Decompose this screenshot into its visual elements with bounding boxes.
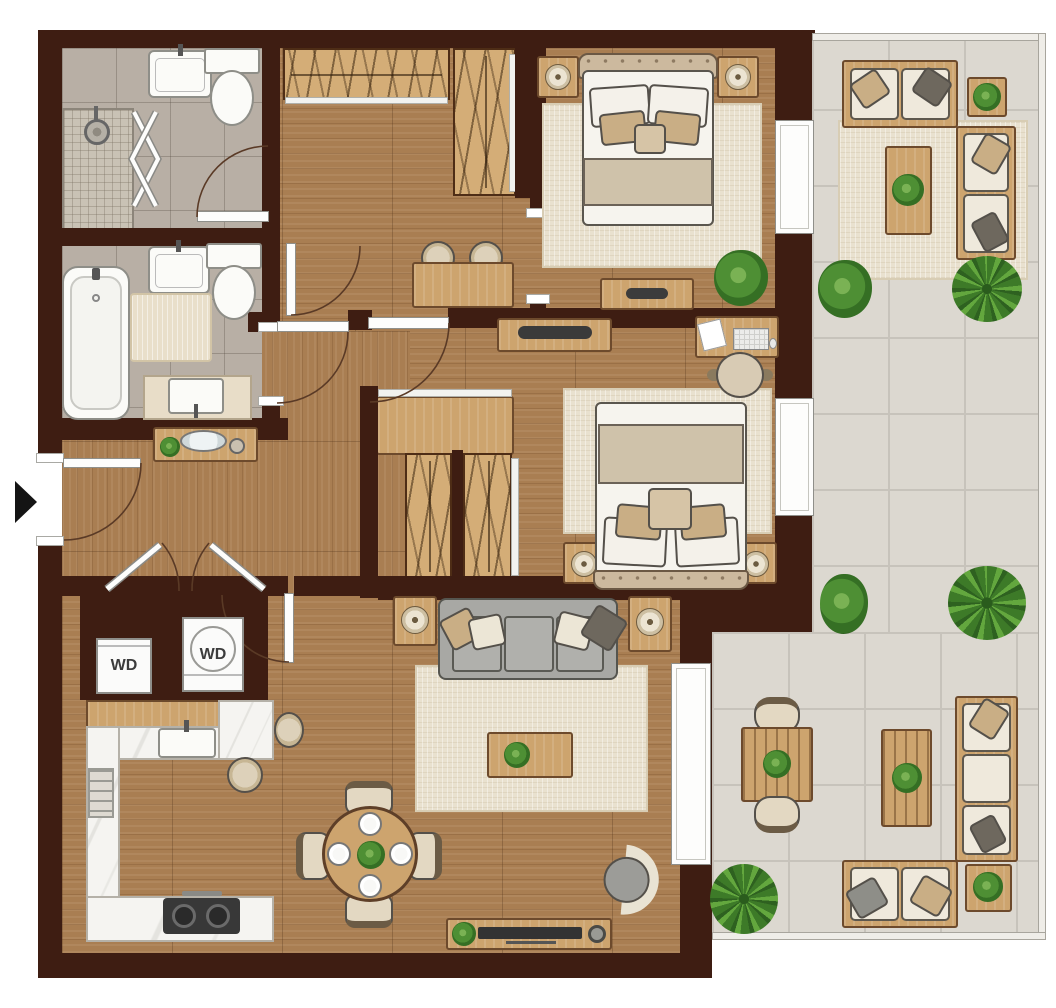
table-lamp bbox=[545, 64, 571, 90]
toilet-bowl bbox=[210, 70, 254, 126]
sink-basin bbox=[155, 58, 205, 92]
place-setting-plate bbox=[389, 842, 413, 866]
table-lamp bbox=[401, 606, 429, 634]
cooktop-handle bbox=[182, 891, 222, 896]
accent-pillow-small bbox=[648, 488, 692, 530]
balcony-plant bbox=[710, 864, 778, 934]
desk-chair bbox=[716, 352, 764, 398]
bench-handle bbox=[626, 288, 668, 299]
balcony-plant bbox=[820, 574, 868, 634]
washer-dryer-label: WD bbox=[111, 658, 138, 674]
tv-stand bbox=[506, 941, 556, 944]
sink-faucet bbox=[176, 240, 181, 252]
sink-faucet bbox=[178, 44, 183, 56]
dining-centerpiece-plant bbox=[357, 841, 385, 869]
shower-head bbox=[84, 119, 110, 145]
washer-dryer-label: WD bbox=[200, 647, 227, 663]
utility-bifold-doors bbox=[107, 545, 264, 589]
desk-mouse bbox=[769, 338, 777, 349]
vanity-faucet bbox=[194, 404, 198, 418]
kitchen-sink bbox=[158, 728, 216, 758]
outdoor-sofa-cushion bbox=[962, 754, 1011, 803]
toilet-bowl bbox=[212, 265, 256, 320]
tv bbox=[478, 927, 582, 939]
bed-blanket bbox=[598, 424, 744, 484]
bathtub-faucet bbox=[92, 268, 100, 280]
balcony-plant bbox=[818, 260, 872, 318]
table-lamp bbox=[636, 608, 664, 636]
dresser-handle bbox=[518, 326, 592, 339]
console-dish bbox=[229, 438, 245, 454]
speaker bbox=[588, 925, 606, 943]
bathtub-drain bbox=[92, 294, 100, 302]
cooktop-burner bbox=[206, 904, 230, 928]
washer-lid-line bbox=[98, 645, 150, 647]
kitchen-faucet bbox=[184, 720, 189, 732]
table-lamp bbox=[725, 64, 751, 90]
balcony-plant bbox=[948, 566, 1026, 640]
tv-console-plant bbox=[452, 922, 476, 946]
coffee-table bbox=[487, 732, 573, 778]
coffee-table-plant bbox=[504, 742, 530, 768]
outdoor-plant bbox=[892, 763, 922, 793]
outdoor-plant bbox=[763, 750, 791, 778]
accent-pillow-small bbox=[634, 124, 666, 154]
place-setting-plate bbox=[358, 874, 382, 898]
washer-panel-line bbox=[184, 674, 242, 676]
balcony-plant bbox=[952, 256, 1022, 322]
outdoor-plant bbox=[892, 174, 924, 206]
bar-stool bbox=[274, 712, 304, 748]
sofa-seat-cushion bbox=[504, 616, 554, 672]
sink-basin bbox=[155, 254, 203, 288]
outdoor-plant bbox=[973, 872, 1003, 902]
bed-blanket bbox=[583, 158, 713, 206]
place-setting-plate bbox=[358, 812, 382, 836]
cooktop-burner bbox=[172, 904, 196, 928]
kitchen-breakfast-bar bbox=[218, 700, 274, 760]
bed-headboard bbox=[593, 570, 749, 590]
bedroom1-plant bbox=[714, 250, 768, 306]
floor-plan: WD WD bbox=[0, 0, 1056, 1008]
place-setting-plate bbox=[327, 842, 351, 866]
dressing-bench bbox=[412, 262, 514, 308]
entrance-arrow-icon bbox=[15, 481, 37, 523]
bar-stool bbox=[227, 757, 263, 793]
console-plant bbox=[160, 437, 180, 457]
dish-rack bbox=[88, 768, 114, 818]
console-mirror-tray bbox=[180, 430, 227, 452]
outdoor-plant bbox=[973, 83, 1001, 111]
shower-bifold-door bbox=[132, 112, 158, 206]
outdoor-chair bbox=[754, 796, 800, 833]
bath-mat bbox=[130, 293, 212, 362]
desk-keyboard bbox=[733, 328, 769, 350]
